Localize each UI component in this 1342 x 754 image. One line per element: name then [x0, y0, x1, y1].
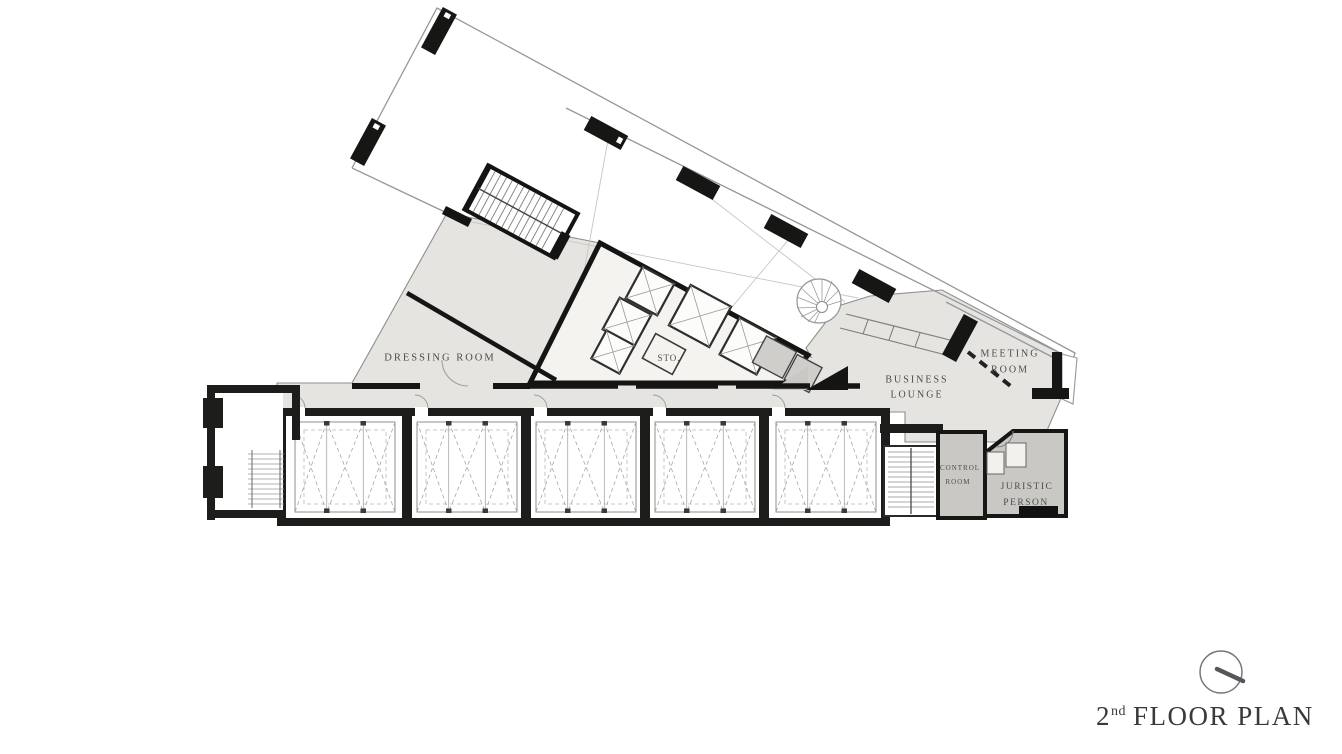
storage-label: STO. — [657, 353, 680, 363]
floor-plan-canvas: DRESSING ROOM STO. BUSINESS LOUNGE MEETI… — [0, 0, 1342, 754]
north-indicator-icon — [1200, 651, 1243, 693]
business-lounge-label-line2: LOUNGE — [890, 390, 943, 401]
floor-ordinal: nd — [1111, 704, 1126, 719]
control-room-label-line1: CONTROL — [940, 464, 980, 472]
lower-room-strip — [277, 395, 890, 526]
juristic-person-label-line2: PERSON — [1003, 498, 1048, 508]
control-room-area — [938, 432, 985, 518]
meeting-room-label-line2: ROOM — [991, 365, 1029, 376]
spiral-staircase — [797, 279, 841, 323]
meeting-room-label-line1: MEETING — [981, 349, 1040, 360]
floor-plan-drawing — [0, 0, 1342, 754]
dressing-room-label: DRESSING ROOM — [384, 353, 495, 364]
floor-number: 2 — [1096, 701, 1111, 731]
business-lounge-label-line1: BUSINESS — [885, 375, 948, 386]
floor-title-text: FLOOR PLAN — [1133, 701, 1314, 731]
juristic-person-label-line1: JURISTIC — [1001, 482, 1054, 492]
control-room-label-line2: ROOM — [945, 478, 970, 486]
page-title: 2ndFLOOR PLAN — [1096, 701, 1314, 732]
